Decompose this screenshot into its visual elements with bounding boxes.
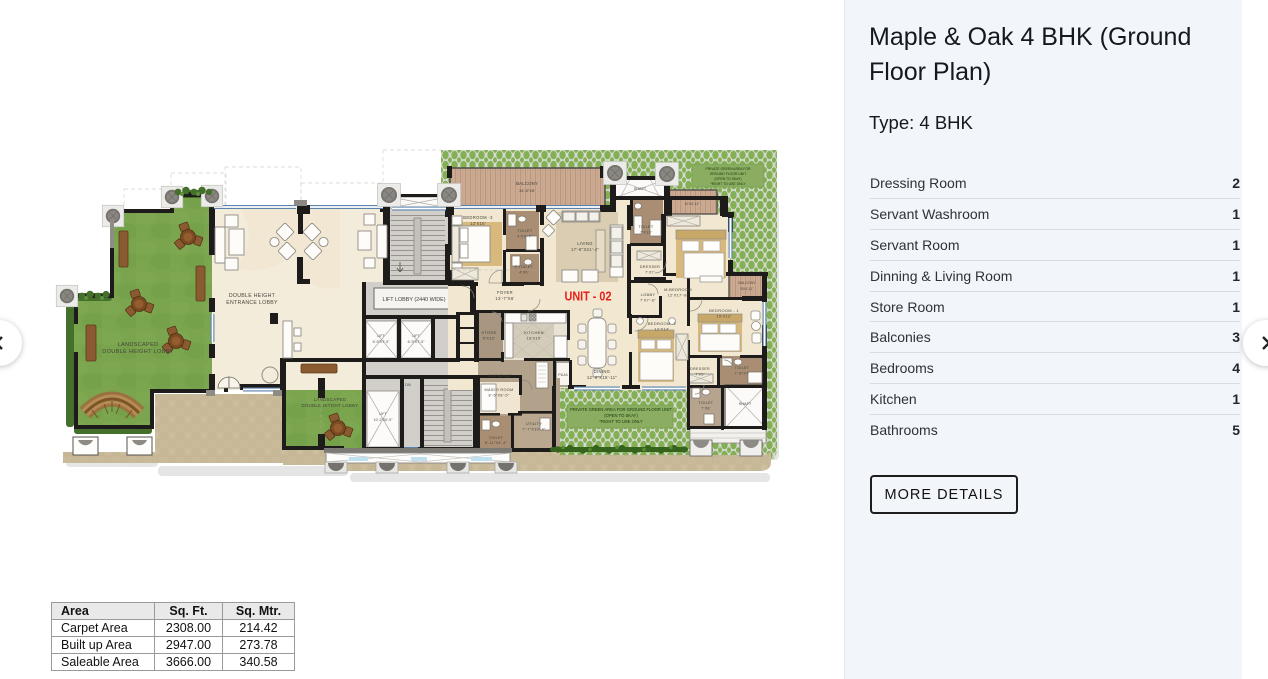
svg-text:LIFT LOBBY (2440 WIDE): LIFT LOBBY (2440 WIDE)	[382, 297, 445, 303]
svg-text:8'-9"X2'-11": 8'-9"X2'-11"	[488, 373, 512, 378]
svg-text:8'X4'-11": 8'X4'-11"	[741, 287, 755, 291]
svg-text:UTILITY: UTILITY	[526, 422, 542, 426]
svg-text:17'-8"X21'-4": 17'-8"X21'-4"	[571, 247, 599, 252]
svg-text:(OPEN TO SKAY): (OPEN TO SKAY)	[714, 177, 741, 181]
svg-text:GROUND FLOOR UNIT: GROUND FLOOR UNIT	[710, 172, 747, 176]
svg-text:12'X14': 12'X14'	[654, 327, 669, 332]
svg-text:15'X12': 15'X12'	[716, 314, 731, 319]
svg-text:BALCONY: BALCONY	[516, 181, 538, 186]
svg-text:TOILET: TOILET	[517, 229, 532, 233]
svg-text:LIVING: LIVING	[577, 241, 593, 246]
svg-text:TOILET: TOILET	[699, 401, 714, 405]
svg-text:7'-7"X10'-4": 7'-7"X10'-4"	[522, 427, 546, 431]
svg-text:10'X4'-11": 10'X4'-11"	[684, 202, 700, 206]
svg-text:UNIT - 02: UNIT - 02	[565, 289, 612, 304]
svg-text:FOYER: FOYER	[497, 290, 513, 295]
svg-text:DRESSER: DRESSER	[690, 367, 710, 371]
svg-text:6'-9"X7'-5": 6'-9"X7'-5"	[408, 340, 425, 344]
svg-text:6'-9"X7'-5": 6'-9"X7'-5"	[373, 340, 390, 344]
svg-text:LIFT: LIFT	[379, 412, 387, 416]
svg-text:BEDROOM -3: BEDROOM -3	[463, 215, 493, 220]
svg-text:STORE: STORE	[481, 330, 496, 335]
svg-text:DINING: DINING	[594, 369, 610, 374]
svg-text:PRIVATE GREEN AREA FOR GROUND: PRIVATE GREEN AREA FOR GROUND FLOOR UNIT	[570, 407, 672, 412]
svg-text:12'X15': 12'X15'	[470, 221, 486, 226]
svg-text:BALCONY: BALCONY	[738, 281, 756, 285]
svg-text:ENTRANCE LOBBY: ENTRANCE LOBBY	[226, 300, 278, 306]
svg-text:34'-5"X8': 34'-5"X8'	[519, 188, 535, 193]
svg-text:M.BEDROOM: M.BEDROOM	[664, 287, 692, 292]
svg-text:LIFT: LIFT	[412, 334, 420, 338]
svg-text:7'X8': 7'X8'	[701, 406, 710, 410]
svg-text:*RIGHT TO USE ONLY: *RIGHT TO USE ONLY	[599, 419, 643, 424]
svg-text:13'X10': 13'X10'	[526, 336, 541, 341]
svg-text:LANDSCAPED: LANDSCAPED	[118, 342, 159, 348]
svg-text:TOILET: TOILET	[638, 225, 653, 229]
svg-text:P.TOILET: P.TOILET	[515, 265, 534, 269]
svg-text:PRIVATE GREEN AREA FOR: PRIVATE GREEN AREA FOR	[706, 167, 751, 171]
svg-text:LOBBY: LOBBY	[641, 292, 656, 297]
svg-text:SHAFT: SHAFT	[634, 187, 647, 191]
svg-text:LANDSCAPED: LANDSCAPED	[314, 397, 347, 402]
svg-text:13'-7"X6': 13'-7"X6'	[495, 296, 514, 301]
svg-text:MAID'S ROOM: MAID'S ROOM	[485, 388, 514, 392]
svg-text:TOILET: TOILET	[735, 366, 750, 370]
svg-text:DOUBLE HITGHT LOBBY: DOUBLE HITGHT LOBBY	[301, 403, 358, 408]
svg-text:5'X10': 5'X10'	[483, 336, 496, 341]
svg-text:DOUBLE HEIGHT LOBBY: DOUBLE HEIGHT LOBBY	[102, 349, 174, 355]
svg-text:7'X7'-6": 7'X7'-6"	[640, 298, 656, 303]
svg-text:12'X17'-8": 12'X17'-8"	[667, 293, 688, 298]
svg-text:12'-6"X15'-11": 12'-6"X15'-11"	[587, 375, 618, 380]
svg-text:KITCHEN: KITCHEN	[524, 330, 544, 335]
svg-text:BEDROOM - 1: BEDROOM - 1	[709, 308, 739, 313]
svg-text:4'X6': 4'X6'	[519, 270, 528, 274]
svg-text:TOILET: TOILET	[489, 436, 504, 440]
svg-text:4'X9'-7": 4'X9'-7"	[517, 234, 533, 238]
svg-text:10'-2"X6'-9": 10'-2"X6'-9"	[374, 418, 393, 422]
svg-text:LIFT: LIFT	[377, 334, 385, 338]
svg-text:7'X7': 7'X7'	[645, 270, 655, 274]
svg-text:DN: DN	[405, 383, 411, 387]
svg-text:5'-11"X4'-4": 5'-11"X4'-4"	[485, 441, 507, 445]
svg-text:DRESSER: DRESSER	[640, 265, 660, 269]
svg-text:*RIGHT TO USE ONLY: *RIGHT TO USE ONLY	[710, 182, 746, 186]
svg-text:(OPEN TO SKAY): (OPEN TO SKAY)	[604, 413, 638, 418]
svg-text:7'X10': 7'X10'	[640, 230, 652, 234]
svg-text:8'-5"X8'-5": 8'-5"X8'-5"	[489, 393, 510, 397]
svg-text:BEDROOM -2: BEDROOM -2	[648, 321, 677, 326]
svg-text:SHAFT: SHAFT	[739, 402, 752, 406]
svg-text:PUJA: PUJA	[558, 373, 568, 377]
svg-text:7'X5': 7'X5'	[695, 372, 704, 376]
svg-text:DOUBLE HEIGHT: DOUBLE HEIGHT	[229, 293, 276, 299]
svg-text:7'-8"X7': 7'-8"X7'	[735, 371, 750, 375]
